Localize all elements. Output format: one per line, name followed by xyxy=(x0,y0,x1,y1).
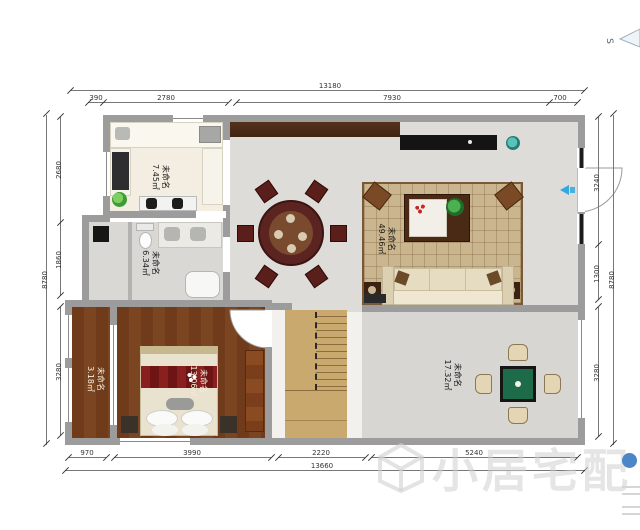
hall-floor-right xyxy=(347,312,362,438)
living-dark-item[interactable] xyxy=(364,294,386,303)
wall-living-mahjong xyxy=(362,305,578,312)
balcony-left-window xyxy=(65,368,72,422)
dim-value: 2680 xyxy=(55,161,63,179)
sofa-seat-gap xyxy=(429,269,430,291)
stove-burner-right xyxy=(172,198,183,209)
mahjong-table-center xyxy=(515,381,521,387)
dim-line xyxy=(68,457,106,458)
dining-chair[interactable] xyxy=(237,225,254,242)
dining-plate xyxy=(274,230,283,239)
stair-divider xyxy=(315,312,317,390)
mahjong-chair[interactable] xyxy=(508,407,528,424)
entry-window-bottom xyxy=(577,214,586,244)
sofa-seat-gap xyxy=(465,269,466,291)
bathroom-door-opening xyxy=(223,237,230,272)
dim-line xyxy=(236,102,577,103)
side-table-lamp xyxy=(368,286,376,294)
room-area: 49.46㎡ xyxy=(376,219,386,259)
bed-headboard xyxy=(140,346,218,354)
dim-value: 13660 xyxy=(311,462,333,470)
room-name: 未命名 xyxy=(386,219,396,259)
mahjong-chair[interactable] xyxy=(475,374,492,394)
dim-value: 3990 xyxy=(183,449,201,457)
bedroom-speaker[interactable] xyxy=(220,416,237,433)
vanity-basin-right xyxy=(190,227,206,241)
dining-plate xyxy=(286,214,295,223)
stair-landing-line xyxy=(285,390,347,391)
wall-bath-bedroom xyxy=(82,300,272,307)
staircase[interactable] xyxy=(285,310,347,438)
mahjong-chair[interactable] xyxy=(508,344,528,361)
sofa-back[interactable] xyxy=(388,290,508,305)
dim-value: 3280 xyxy=(593,364,601,382)
floor-plan-canvas: S 未命名 7.45㎡ 未命名 6.34㎡ 未命名 49.46㎡ 未命名 13.… xyxy=(0,0,640,530)
bed-pillow xyxy=(182,424,208,436)
entry-door-opening xyxy=(578,168,585,212)
bed-pillow xyxy=(152,424,178,436)
tv-console[interactable] xyxy=(400,135,497,150)
dim-value: 970 xyxy=(80,449,93,457)
dim-value: 2780 xyxy=(157,94,175,102)
mahjong-chair[interactable] xyxy=(544,374,561,394)
compass-south-label: S xyxy=(604,38,614,44)
mahjong-window xyxy=(578,320,585,418)
room-label-bedroom: 未命名 13.06㎡ xyxy=(188,361,208,401)
badge-circle-icon xyxy=(622,453,637,468)
room-name: 未命名 xyxy=(198,361,208,401)
dim-line xyxy=(65,470,585,471)
dining-plate xyxy=(298,232,307,241)
kitchen-door-opening xyxy=(223,140,230,205)
dim-line xyxy=(114,457,271,458)
wall-stair-pier xyxy=(272,303,292,310)
watermark-cube-logo-icon xyxy=(378,443,424,493)
dim-value: 7930 xyxy=(383,94,401,102)
dim-line xyxy=(88,102,228,103)
wall-bath-inner xyxy=(128,222,132,300)
kitchen-plant[interactable] xyxy=(112,192,127,207)
badge-text-line xyxy=(622,506,640,508)
bedroom-speaker[interactable] xyxy=(121,416,138,433)
stair-landing-line xyxy=(285,420,347,421)
dim-value: 3280 xyxy=(55,363,63,381)
toilet-tank[interactable] xyxy=(136,223,154,231)
dim-value: 1300 xyxy=(593,265,601,283)
wall-plant[interactable] xyxy=(506,136,520,150)
room-label-mahjong: 未命名 17.32㎡ xyxy=(442,355,462,395)
badge-text-line xyxy=(622,513,640,515)
dim-value: 8780 xyxy=(608,271,616,289)
bathtub[interactable] xyxy=(185,271,220,298)
wall-bath-left xyxy=(82,215,89,307)
table-plant xyxy=(446,198,464,216)
room-name: 未命名 xyxy=(95,359,105,399)
entry-window-top xyxy=(577,148,586,168)
room-name: 未命名 xyxy=(452,355,462,395)
washing-machine[interactable] xyxy=(93,226,109,242)
kitchen-counter-right[interactable] xyxy=(202,148,223,205)
dining-chair[interactable] xyxy=(330,225,347,242)
dim-value: 3240 xyxy=(593,174,601,192)
kitchen-sink[interactable] xyxy=(115,127,130,140)
room-label-bathroom: 未命名 6.34㎡ xyxy=(140,243,160,283)
tv-console-item xyxy=(468,140,472,144)
kitchen-top-window xyxy=(173,115,203,122)
room-label-living: 未命名 49.46㎡ xyxy=(376,219,396,259)
sofa-armrest xyxy=(502,266,514,305)
badge-text-line xyxy=(622,486,640,488)
vanity-basin-left xyxy=(164,227,180,241)
kitchen-fridge[interactable] xyxy=(112,152,129,190)
balcony-glass-door[interactable] xyxy=(110,325,117,425)
compass-arrow-icon xyxy=(620,29,640,47)
balcony-left-window xyxy=(65,315,72,358)
dim-line xyxy=(70,90,585,91)
kitchen-left-window xyxy=(103,152,110,196)
dim-value: 8780 xyxy=(41,271,49,289)
wardrobe[interactable] xyxy=(245,350,264,432)
room-area: 3.18㎡ xyxy=(85,359,95,399)
bedroom-door-opening xyxy=(265,310,272,347)
badge-text-line xyxy=(622,493,640,495)
dim-value: 1860 xyxy=(55,251,63,269)
dim-value: 5240 xyxy=(465,449,483,457)
room-area: 17.32㎡ xyxy=(442,355,452,395)
dim-value: 700 xyxy=(553,94,566,102)
room-area: 6.34㎡ xyxy=(140,243,150,283)
stove-burner-left xyxy=(146,198,157,209)
bedroom-bottom-window xyxy=(120,438,190,445)
dim-line xyxy=(278,457,365,458)
room-area: 13.06㎡ xyxy=(188,361,198,401)
room-label-kitchen: 未命名 7.45㎡ xyxy=(150,157,170,197)
room-name: 未命名 xyxy=(150,243,160,283)
sofa-seats[interactable] xyxy=(394,268,502,292)
hall-floor-left xyxy=(272,307,285,438)
dim-value: 2220 xyxy=(312,449,330,457)
stair-treads xyxy=(316,310,347,390)
dim-line xyxy=(60,117,61,296)
dining-plate xyxy=(287,244,296,253)
room-label-balcony: 未命名 3.18㎡ xyxy=(85,359,105,399)
kitchen-appliance[interactable] xyxy=(199,126,221,143)
dim-line xyxy=(371,457,577,458)
dim-value: 13180 xyxy=(319,82,341,90)
room-area: 7.45㎡ xyxy=(150,157,160,197)
room-name: 未命名 xyxy=(160,157,170,197)
table-flowers xyxy=(413,203,427,215)
kitchen-bottom-opening xyxy=(196,211,226,218)
dining-sideboard[interactable] xyxy=(230,122,400,137)
